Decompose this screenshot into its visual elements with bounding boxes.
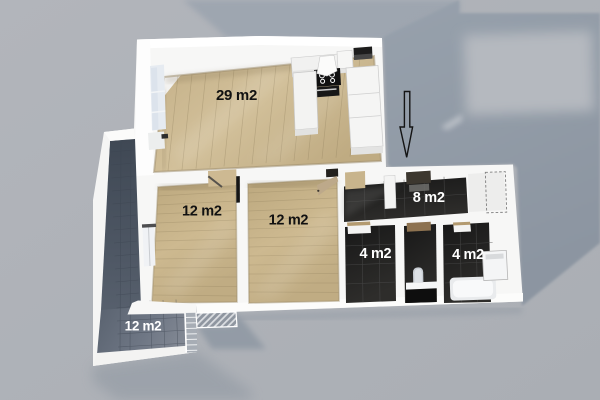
svg-text:12 m2: 12 m2 <box>182 204 222 220</box>
svg-text:29 m2: 29 m2 <box>216 87 257 104</box>
svg-text:8 m2: 8 m2 <box>413 190 445 206</box>
svg-text:12 m2: 12 m2 <box>269 213 309 229</box>
svg-text:4 m2: 4 m2 <box>359 246 391 262</box>
svg-text:4 m2: 4 m2 <box>452 247 484 263</box>
svg-text:12 m2: 12 m2 <box>125 319 162 334</box>
